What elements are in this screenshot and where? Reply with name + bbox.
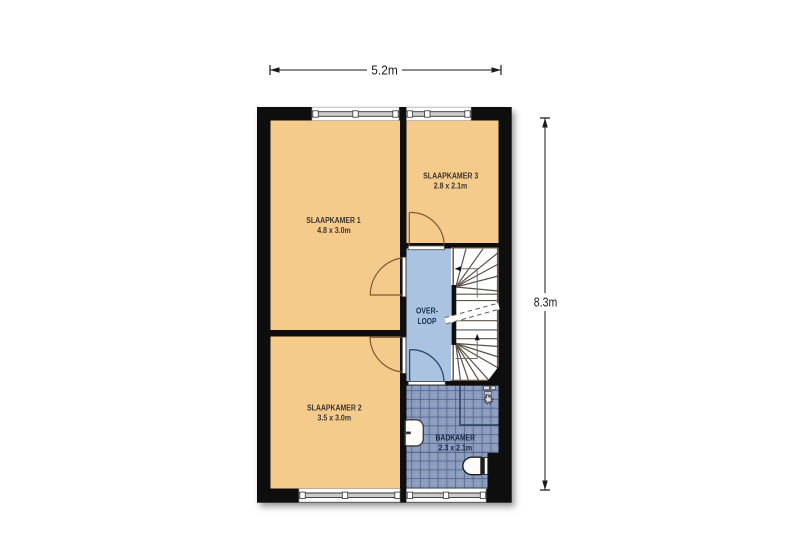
svg-text:LOOP: LOOP (418, 317, 437, 326)
svg-text:4.8 x 3.0m: 4.8 x 3.0m (317, 226, 351, 235)
svg-text:8.3m: 8.3m (534, 296, 558, 310)
svg-text:OVER-: OVER- (416, 306, 438, 315)
svg-text:SLAAPKAMER 2: SLAAPKAMER 2 (307, 404, 362, 413)
svg-text:5.2m: 5.2m (371, 63, 398, 77)
svg-text:3.5 x 3.0m: 3.5 x 3.0m (318, 414, 352, 423)
svg-text:BADKAMER: BADKAMER (436, 433, 476, 442)
svg-text:2.3 x 2.1m: 2.3 x 2.1m (439, 443, 473, 452)
svg-text:SLAAPKAMER 1: SLAAPKAMER 1 (306, 216, 361, 225)
svg-text:2.8 x 2.1m: 2.8 x 2.1m (434, 182, 468, 191)
svg-text:SLAAPKAMER 3: SLAAPKAMER 3 (423, 172, 479, 181)
